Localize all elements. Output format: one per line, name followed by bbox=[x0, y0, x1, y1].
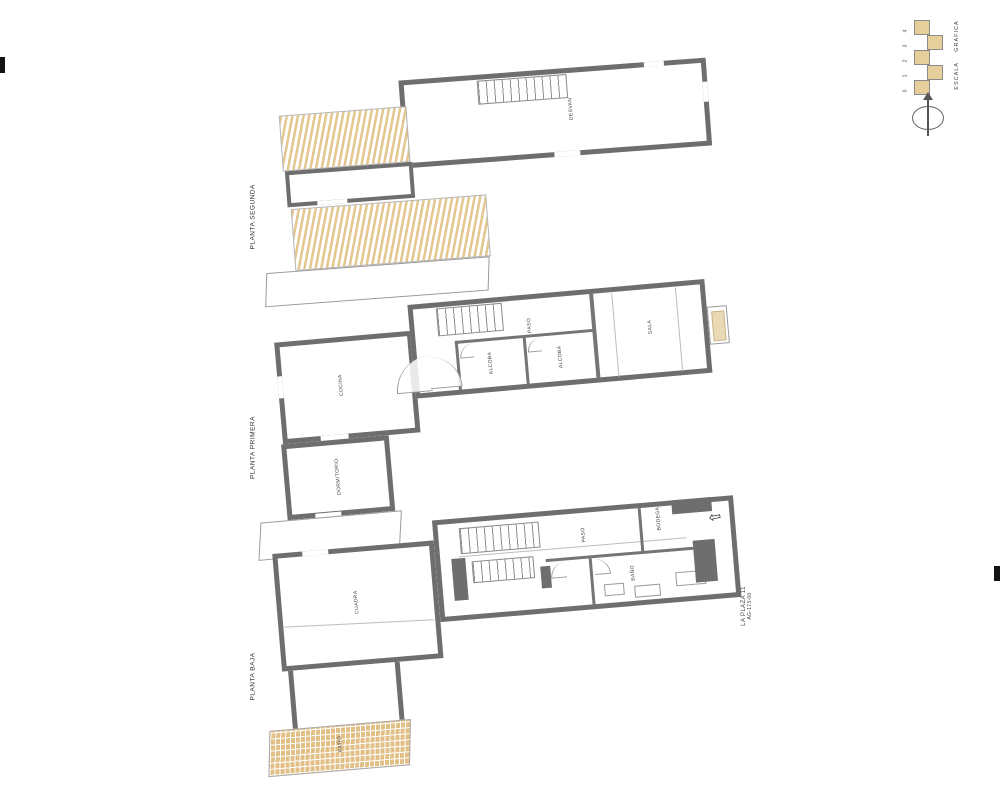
entry-arrow-icon: ⇦ bbox=[707, 509, 722, 526]
scale-step bbox=[914, 50, 930, 65]
north-arrow-head bbox=[923, 92, 933, 100]
plan-title-segunda: PLANTA SEGUNDA bbox=[250, 190, 257, 250]
scale-step bbox=[927, 35, 943, 50]
stairs-icon bbox=[436, 303, 504, 337]
scale-step bbox=[914, 20, 930, 35]
scale-tick-0: 0 bbox=[902, 90, 908, 93]
plan-title-primera: PLANTA PRIMERA bbox=[250, 413, 257, 483]
lower-wing bbox=[288, 662, 404, 729]
plan-sheet: DESVAN PLANTA SEGUNDA COCINA PASO bbox=[0, 0, 1000, 800]
floor-plan-segunda: DESVAN bbox=[248, 49, 734, 309]
floor-plan-baja: CUADRA ⇦ PASO BODEGA BAÑO PATIO bbox=[241, 494, 765, 780]
wall-segment bbox=[693, 539, 718, 583]
scan-edge-mark-left bbox=[0, 57, 5, 73]
reference-text: AG-173-00 bbox=[747, 576, 753, 636]
scale-tick-1: 1 bbox=[902, 75, 908, 78]
bath-fixture bbox=[604, 583, 625, 597]
bath-fixture bbox=[634, 584, 661, 598]
window-opening bbox=[702, 82, 708, 102]
titleblock: LA PLAZA 11 AG-173-00 bbox=[741, 576, 753, 636]
window-sill bbox=[711, 310, 727, 341]
door-opening bbox=[554, 150, 580, 157]
scale-step bbox=[927, 65, 943, 80]
scale-tick-4: 4 bbox=[902, 30, 908, 33]
plan-title-baja: PLANTA BAJA bbox=[250, 652, 257, 702]
scale-tick-2: 2 bbox=[902, 60, 908, 63]
roof-hatch-upper bbox=[279, 106, 411, 171]
scale-label: ESCALA GRAFICA bbox=[954, 10, 960, 100]
scale-tick-3: 3 bbox=[902, 45, 908, 48]
scan-edge-mark-right bbox=[994, 566, 1000, 581]
north-arrow-line bbox=[927, 98, 929, 136]
